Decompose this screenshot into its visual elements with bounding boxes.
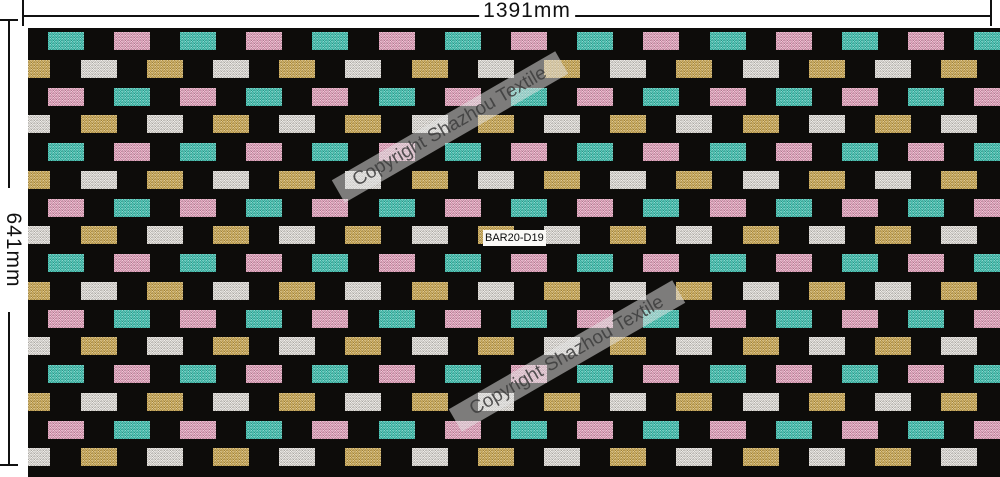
fabric-tile <box>809 115 845 133</box>
fabric-tile <box>776 32 812 50</box>
fabric-tile <box>213 448 249 466</box>
fabric-tile <box>577 365 613 383</box>
fabric-tile <box>345 60 381 78</box>
fabric-tile <box>48 32 84 50</box>
fabric-tile <box>511 310 547 328</box>
fabric-tile <box>809 393 845 411</box>
fabric-tile <box>312 254 348 272</box>
fabric-tile <box>114 143 150 161</box>
fabric-tile <box>710 421 746 439</box>
fabric-tile <box>48 199 84 217</box>
fabric-tile <box>114 421 150 439</box>
fabric-tile <box>941 171 977 189</box>
fabric-tile <box>246 421 282 439</box>
fabric-tile <box>180 254 216 272</box>
fabric-tile <box>412 171 448 189</box>
fabric-tile <box>643 88 679 106</box>
fabric-tile <box>312 365 348 383</box>
fabric-tile <box>610 448 646 466</box>
fabric-tile <box>445 199 481 217</box>
fabric-tile <box>147 60 183 78</box>
left-dimension-tick-bottom <box>0 464 18 466</box>
fabric-tile <box>246 254 282 272</box>
fabric-tile <box>412 60 448 78</box>
fabric-tile <box>941 448 977 466</box>
top-dimension-line-left <box>22 15 485 17</box>
fabric-tile <box>445 254 481 272</box>
fabric-tile <box>974 199 1000 217</box>
fabric-tile <box>147 226 183 244</box>
fabric-tile <box>28 60 50 78</box>
fabric-tile <box>710 32 746 50</box>
fabric-tile <box>974 143 1000 161</box>
fabric-tile <box>941 115 977 133</box>
fabric-tile <box>743 393 779 411</box>
top-dimension-tick-right <box>990 0 992 26</box>
fabric-tile <box>610 226 646 244</box>
fabric-tile <box>379 254 415 272</box>
fabric-tile <box>180 199 216 217</box>
fabric-tile <box>776 254 812 272</box>
fabric-tile <box>114 310 150 328</box>
fabric-tile <box>842 421 878 439</box>
fabric-tile <box>213 393 249 411</box>
fabric-tile <box>180 365 216 383</box>
fabric-tile <box>379 199 415 217</box>
fabric-tile <box>743 448 779 466</box>
fabric-tile <box>28 171 50 189</box>
fabric-tile <box>842 365 878 383</box>
fabric-tile <box>743 60 779 78</box>
fabric-tile <box>643 199 679 217</box>
fabric-tile <box>710 254 746 272</box>
fabric-tile <box>875 282 911 300</box>
fabric-tile <box>776 421 812 439</box>
fabric-tile <box>81 60 117 78</box>
fabric-product-image: { "dimensions": { "width_label": "1391mm… <box>0 0 1000 477</box>
fabric-tile <box>544 282 580 300</box>
fabric-tile <box>676 337 712 355</box>
fabric-tile <box>577 254 613 272</box>
left-dimension-line-bottom <box>8 312 10 465</box>
fabric-tile <box>842 310 878 328</box>
fabric-tile <box>974 310 1000 328</box>
fabric-tile <box>213 115 249 133</box>
fabric-tile <box>147 171 183 189</box>
fabric-tile <box>478 282 514 300</box>
fabric-tile <box>610 60 646 78</box>
fabric-tile <box>279 337 315 355</box>
fabric-tile <box>676 448 712 466</box>
fabric-tile <box>213 282 249 300</box>
fabric-tile <box>875 393 911 411</box>
fabric-tile <box>379 32 415 50</box>
fabric-tile <box>676 115 712 133</box>
fabric-tile <box>81 393 117 411</box>
fabric-tile <box>511 143 547 161</box>
fabric-tile <box>279 393 315 411</box>
fabric-tile <box>180 32 216 50</box>
fabric-tile <box>908 88 944 106</box>
fabric-tile <box>345 393 381 411</box>
fabric-tile <box>743 282 779 300</box>
fabric-tile <box>643 421 679 439</box>
fabric-tile <box>246 32 282 50</box>
fabric-tile <box>213 171 249 189</box>
top-dimension-line-right <box>571 15 992 17</box>
fabric-tile <box>345 115 381 133</box>
fabric-tile <box>974 421 1000 439</box>
fabric-tile <box>809 337 845 355</box>
fabric-tile <box>180 310 216 328</box>
fabric-tile <box>941 282 977 300</box>
fabric-tile <box>246 143 282 161</box>
fabric-tile <box>676 226 712 244</box>
fabric-tile <box>478 171 514 189</box>
fabric-tile <box>345 282 381 300</box>
fabric-tile <box>776 365 812 383</box>
fabric-tile <box>577 88 613 106</box>
fabric-tile <box>842 254 878 272</box>
fabric-tile <box>875 226 911 244</box>
fabric-tile <box>908 32 944 50</box>
fabric-tile <box>809 448 845 466</box>
fabric-tile <box>710 310 746 328</box>
fabric-tile <box>908 421 944 439</box>
fabric-tile <box>379 310 415 328</box>
fabric-tile <box>345 337 381 355</box>
fabric-tile <box>279 282 315 300</box>
fabric-tile <box>676 171 712 189</box>
fabric-tile <box>279 226 315 244</box>
fabric-tile <box>610 393 646 411</box>
fabric-tile <box>974 88 1000 106</box>
fabric-tile <box>710 143 746 161</box>
fabric-tile <box>511 199 547 217</box>
fabric-tile <box>809 171 845 189</box>
fabric-tile <box>577 32 613 50</box>
fabric-tile <box>875 337 911 355</box>
fabric-tile <box>81 337 117 355</box>
fabric-tile <box>743 115 779 133</box>
fabric-tile <box>180 421 216 439</box>
fabric-tile <box>147 282 183 300</box>
fabric-tile <box>941 60 977 78</box>
fabric-tile <box>842 143 878 161</box>
fabric-tile <box>213 226 249 244</box>
fabric-tile <box>246 199 282 217</box>
fabric-tile <box>412 448 448 466</box>
fabric-tile <box>842 199 878 217</box>
fabric-tile <box>743 337 779 355</box>
fabric-tile <box>246 88 282 106</box>
fabric-tile <box>974 32 1000 50</box>
fabric-tile <box>511 421 547 439</box>
fabric-tile <box>279 60 315 78</box>
fabric-tile <box>147 448 183 466</box>
fabric-tile <box>345 226 381 244</box>
fabric-tile <box>544 115 580 133</box>
fabric-tile <box>445 365 481 383</box>
fabric-tile <box>379 365 415 383</box>
fabric-tile <box>544 226 580 244</box>
fabric-tile <box>875 448 911 466</box>
fabric-tile <box>643 365 679 383</box>
fabric-tile <box>28 115 50 133</box>
fabric-tile <box>478 448 514 466</box>
fabric-tile <box>81 282 117 300</box>
fabric-tile <box>908 365 944 383</box>
fabric-tile <box>875 60 911 78</box>
fabric-tile <box>710 365 746 383</box>
fabric-tile <box>941 393 977 411</box>
fabric-tile <box>577 421 613 439</box>
fabric-tile <box>809 282 845 300</box>
fabric-tile <box>445 32 481 50</box>
fabric-tile <box>776 88 812 106</box>
fabric-tile <box>213 60 249 78</box>
top-dimension-tick-left <box>22 0 24 26</box>
fabric-tile <box>445 143 481 161</box>
fabric-tile <box>48 254 84 272</box>
fabric-tile <box>544 393 580 411</box>
fabric-tile <box>312 310 348 328</box>
fabric-tile <box>743 226 779 244</box>
fabric-tile <box>312 88 348 106</box>
fabric-tile <box>81 448 117 466</box>
fabric-tile <box>809 226 845 244</box>
fabric-tile <box>114 254 150 272</box>
fabric-tile <box>676 393 712 411</box>
fabric-tile <box>478 60 514 78</box>
fabric-tile <box>114 365 150 383</box>
fabric-tile <box>577 143 613 161</box>
fabric-tile <box>147 337 183 355</box>
fabric-tile <box>279 115 315 133</box>
fabric-tile <box>28 448 50 466</box>
fabric-tile <box>544 448 580 466</box>
fabric-tile <box>875 171 911 189</box>
fabric-tile <box>842 32 878 50</box>
fabric-tile <box>643 143 679 161</box>
width-dimension-label: 1391mm <box>479 0 575 22</box>
fabric-tile <box>379 88 415 106</box>
left-dimension-line-top <box>8 20 10 188</box>
fabric-tile <box>908 310 944 328</box>
fabric-tile <box>345 448 381 466</box>
fabric-tile <box>412 393 448 411</box>
fabric-tile <box>776 143 812 161</box>
fabric-tile <box>743 171 779 189</box>
fabric-tile <box>180 88 216 106</box>
fabric-tile <box>974 365 1000 383</box>
fabric-tile <box>478 337 514 355</box>
fabric-tile <box>710 88 746 106</box>
fabric-tile <box>48 365 84 383</box>
fabric-tile <box>776 310 812 328</box>
fabric-tile <box>28 226 50 244</box>
fabric-tile <box>114 32 150 50</box>
swatch-code-label: BAR20-D19 <box>483 230 546 246</box>
fabric-tile <box>511 32 547 50</box>
fabric-tile <box>81 115 117 133</box>
fabric-tile <box>412 337 448 355</box>
fabric-tile <box>809 60 845 78</box>
fabric-tile <box>180 143 216 161</box>
fabric-tile <box>643 254 679 272</box>
fabric-tile <box>28 282 50 300</box>
fabric-tile <box>544 171 580 189</box>
fabric-tile <box>48 310 84 328</box>
fabric-tile <box>147 115 183 133</box>
fabric-tile <box>643 32 679 50</box>
fabric-tile <box>28 393 50 411</box>
fabric-tile <box>412 282 448 300</box>
fabric-tile <box>246 310 282 328</box>
fabric-tile <box>842 88 878 106</box>
left-dimension-tick-top <box>0 19 18 21</box>
fabric-tile <box>908 199 944 217</box>
fabric-tile <box>445 310 481 328</box>
fabric-tile <box>511 254 547 272</box>
fabric-tile <box>875 115 911 133</box>
fabric-tile <box>610 171 646 189</box>
fabric-tile <box>279 171 315 189</box>
fabric-tile <box>412 226 448 244</box>
fabric-tile <box>312 143 348 161</box>
fabric-tile <box>28 337 50 355</box>
fabric-tile <box>941 337 977 355</box>
fabric-tile <box>48 421 84 439</box>
fabric-tile <box>610 115 646 133</box>
fabric-tile <box>246 365 282 383</box>
fabric-tile <box>114 88 150 106</box>
fabric-tile <box>908 143 944 161</box>
fabric-tile <box>114 199 150 217</box>
fabric-tile <box>213 337 249 355</box>
fabric-tile <box>147 393 183 411</box>
fabric-tile <box>48 88 84 106</box>
fabric-tile <box>908 254 944 272</box>
fabric-tile <box>48 143 84 161</box>
fabric-tile <box>577 199 613 217</box>
fabric-tile <box>776 199 812 217</box>
fabric-tile <box>81 226 117 244</box>
fabric-tile <box>974 254 1000 272</box>
fabric-tile <box>312 32 348 50</box>
fabric-tile <box>710 199 746 217</box>
height-dimension-label: 641mm <box>2 208 24 291</box>
fabric-tile <box>312 421 348 439</box>
fabric-tile <box>676 60 712 78</box>
fabric-tile <box>941 226 977 244</box>
fabric-tile <box>379 421 415 439</box>
fabric-tile <box>279 448 315 466</box>
fabric-tile <box>81 171 117 189</box>
